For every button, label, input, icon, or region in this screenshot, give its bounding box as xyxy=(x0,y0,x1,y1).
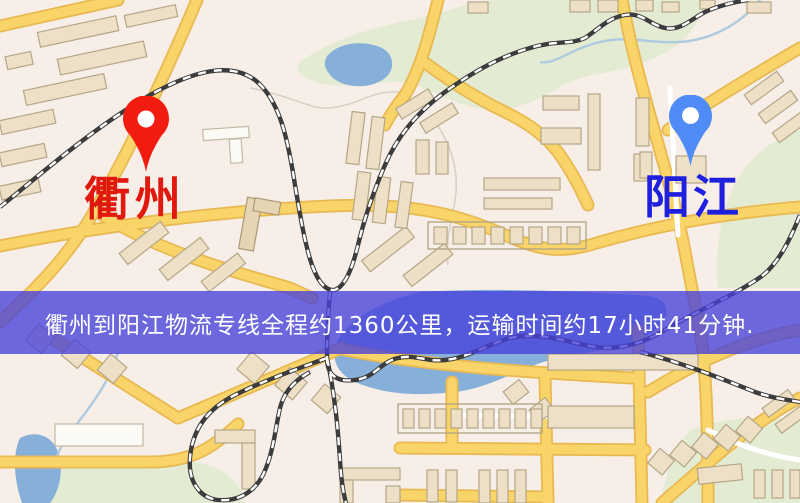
origin-pin-icon[interactable] xyxy=(122,96,170,174)
origin-label: 衢州 xyxy=(84,176,186,222)
destination-label: 阳江 xyxy=(644,174,742,220)
destination-pin-shape xyxy=(669,95,712,166)
map-viewport[interactable]: 衢州 阳江 衢州到阳江物流专线全程约1360公里，运输时间约17小时41分钟. xyxy=(0,0,800,503)
map-canvas[interactable] xyxy=(0,0,800,503)
route-info-text: 衢州到阳江物流专线全程约1360公里，运输时间约17小时41分钟. xyxy=(0,306,754,340)
basemap-layer xyxy=(0,0,800,503)
route-info-banner: 衢州到阳江物流专线全程约1360公里，运输时间约17小时41分钟. xyxy=(0,291,800,354)
origin-pin-shape xyxy=(123,96,169,172)
destination-pin-icon[interactable] xyxy=(668,95,713,168)
